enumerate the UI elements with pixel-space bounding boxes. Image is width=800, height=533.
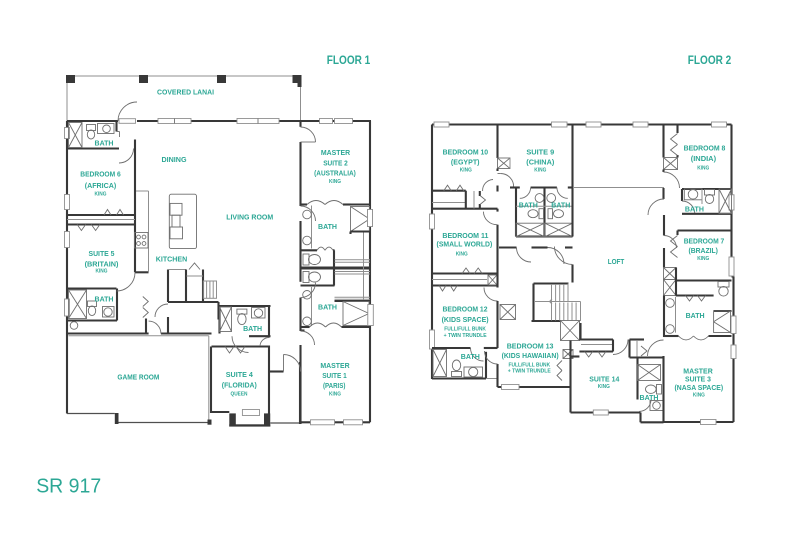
svg-text:BATH: BATH [461, 354, 480, 361]
svg-text:(CHINA): (CHINA) [526, 158, 554, 167]
svg-text:QUEEN: QUEEN [231, 392, 248, 398]
svg-text:KING: KING [460, 168, 472, 174]
svg-text:SUITE 2: SUITE 2 [323, 159, 348, 168]
svg-text:(INDIA): (INDIA) [691, 154, 717, 163]
svg-text:(FLORIDA): (FLORIDA) [222, 381, 257, 390]
svg-text:(PARIS): (PARIS) [323, 381, 346, 390]
svg-text:SR 917: SR 917 [36, 475, 101, 498]
svg-text:+ TWIN TRUNDLE: + TWIN TRUNDLE [508, 369, 552, 375]
svg-text:FLOOR 2: FLOOR 2 [688, 55, 732, 67]
svg-text:(AUSTRALIA): (AUSTRALIA) [314, 169, 356, 178]
svg-text:SUITE 5: SUITE 5 [89, 249, 116, 258]
svg-text:KING: KING [329, 179, 341, 185]
svg-text:SUITE 9: SUITE 9 [526, 148, 554, 157]
svg-text:BEDROOM 10: BEDROOM 10 [443, 148, 489, 157]
svg-text:(NASA SPACE): (NASA SPACE) [675, 383, 724, 392]
svg-text:KING: KING [534, 168, 546, 174]
svg-text:BATH: BATH [95, 296, 114, 303]
svg-text:BEDROOM 11: BEDROOM 11 [442, 231, 489, 240]
svg-text:(AFRICA): (AFRICA) [85, 181, 117, 190]
svg-text:KING: KING [697, 256, 709, 262]
svg-text:DINING: DINING [162, 155, 187, 164]
svg-text:MASTER: MASTER [321, 148, 351, 157]
svg-text:BEDROOM 13: BEDROOM 13 [507, 342, 554, 351]
svg-text:KITCHEN: KITCHEN [156, 255, 188, 264]
svg-text:KING: KING [329, 392, 341, 398]
svg-text:KING: KING [95, 192, 107, 198]
svg-text:LIVING ROOM: LIVING ROOM [226, 213, 273, 222]
svg-text:BATH: BATH [243, 326, 262, 333]
svg-text:COVERED LANAI: COVERED LANAI [157, 88, 214, 97]
svg-text:BATH: BATH [640, 395, 659, 402]
svg-text:(EGYPT): (EGYPT) [451, 158, 480, 167]
svg-text:KING: KING [456, 251, 468, 257]
svg-text:FLOOR 1: FLOOR 1 [327, 55, 371, 67]
svg-text:SUITE 14: SUITE 14 [589, 375, 620, 384]
svg-text:LOFT: LOFT [608, 257, 625, 266]
svg-text:BEDROOM 6: BEDROOM 6 [80, 170, 121, 179]
svg-text:KING: KING [693, 393, 705, 399]
svg-text:BATH: BATH [318, 224, 337, 231]
svg-text:BEDROOM 12: BEDROOM 12 [443, 305, 488, 314]
svg-text:KING: KING [598, 384, 610, 390]
svg-text:BEDROOM 8: BEDROOM 8 [684, 144, 726, 153]
svg-text:(BRITAIN): (BRITAIN) [85, 260, 119, 269]
svg-text:SUITE 4: SUITE 4 [226, 370, 254, 379]
svg-text:KING: KING [697, 165, 709, 171]
svg-text:BATH: BATH [318, 305, 337, 312]
svg-text:MASTER: MASTER [320, 361, 350, 370]
svg-text:FULL/FULL BUNK: FULL/FULL BUNK [444, 327, 486, 333]
svg-text:SUITE 1: SUITE 1 [322, 371, 347, 380]
svg-text:KING: KING [96, 268, 108, 274]
svg-text:BATH: BATH [685, 206, 704, 213]
svg-text:BATH: BATH [686, 313, 705, 320]
svg-text:(BRAZIL): (BRAZIL) [688, 246, 718, 255]
svg-text:(KIDS SPACE): (KIDS SPACE) [442, 315, 489, 324]
svg-text:BATH: BATH [551, 203, 570, 210]
svg-text:+ TWIN TRUNDLE: + TWIN TRUNDLE [444, 333, 488, 339]
svg-text:BATH: BATH [519, 203, 538, 210]
svg-text:FULL/FULL BUNK: FULL/FULL BUNK [509, 362, 551, 368]
svg-text:(KIDS HAWAIIAN): (KIDS HAWAIIAN) [502, 351, 559, 360]
svg-text:GAME ROOM: GAME ROOM [117, 373, 159, 382]
svg-text:BEDROOM 7: BEDROOM 7 [684, 236, 725, 245]
svg-text:(SMALL WORLD): (SMALL WORLD) [437, 240, 493, 249]
svg-text:BATH: BATH [95, 141, 114, 148]
